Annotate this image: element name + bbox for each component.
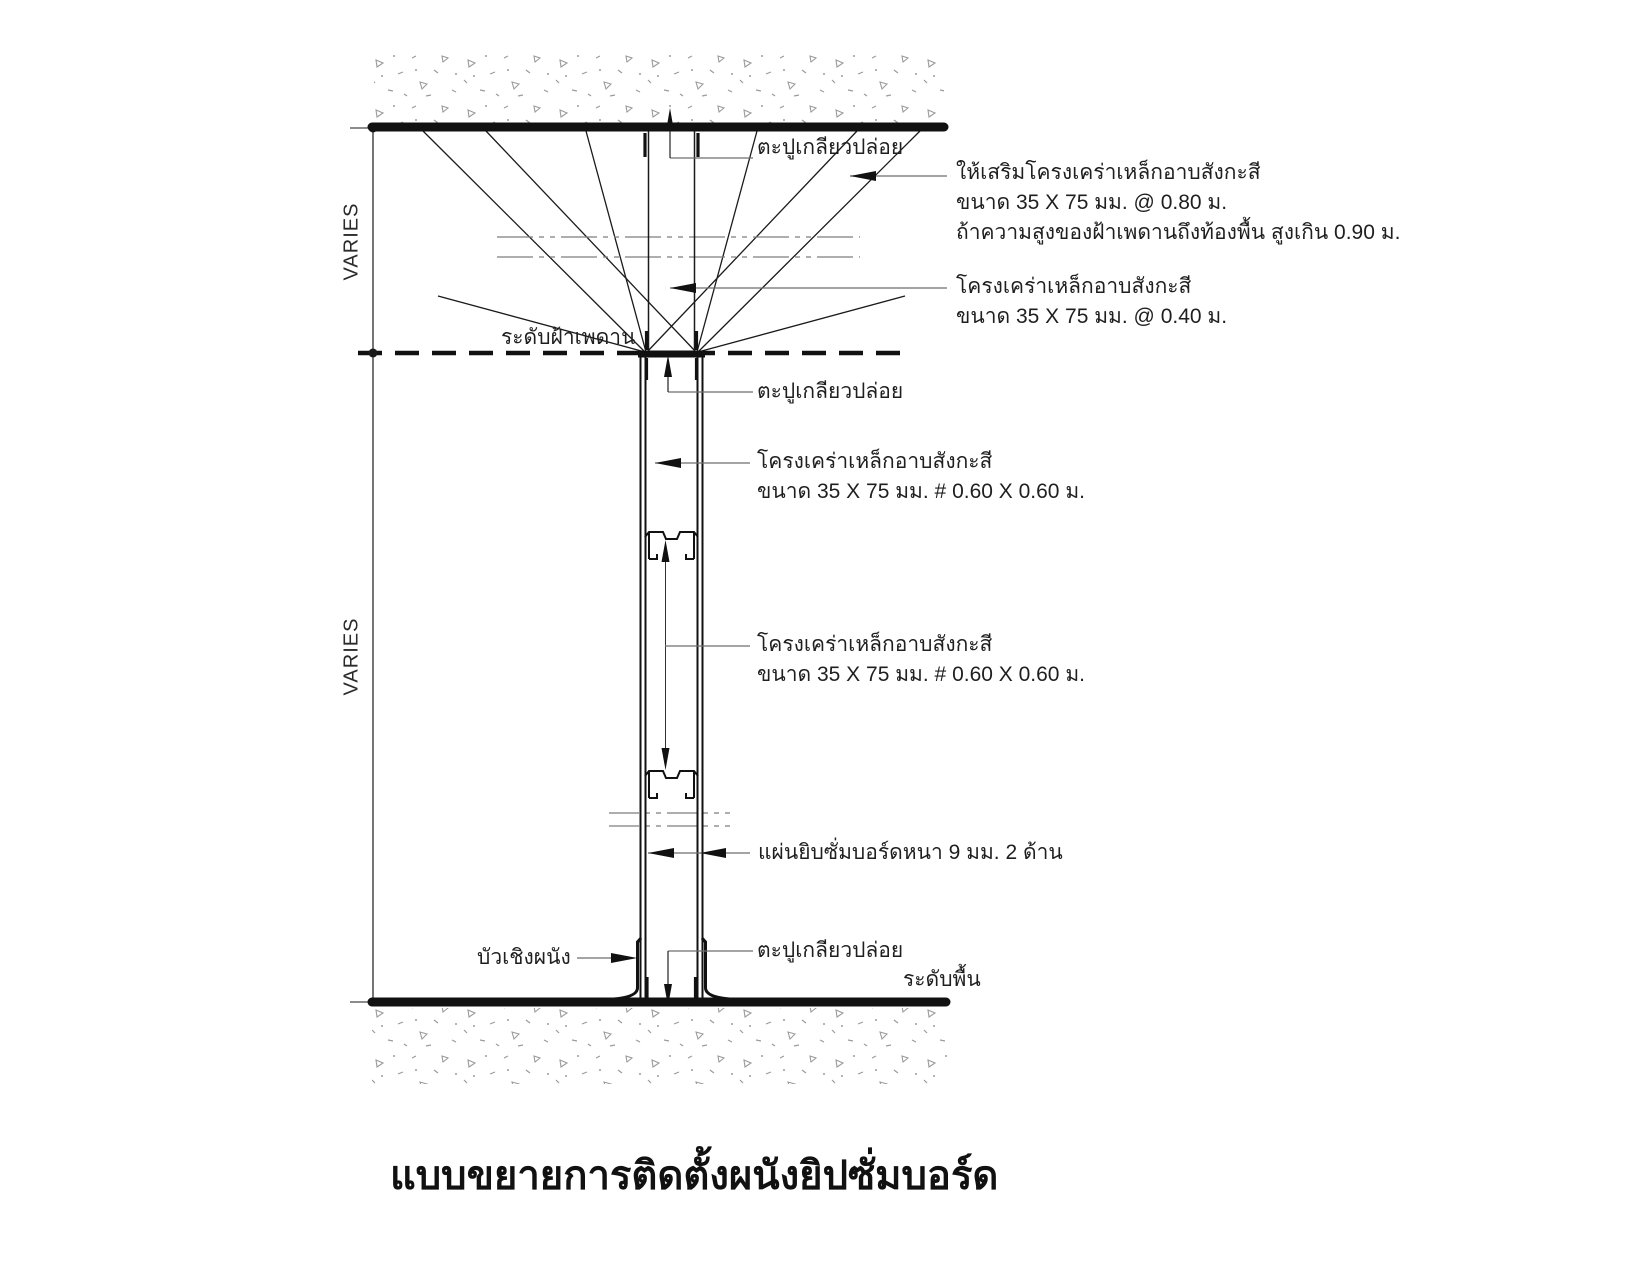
upper-studs xyxy=(649,131,695,353)
channel-section-lower xyxy=(645,771,698,798)
diagonal-braces xyxy=(423,131,920,352)
brace-annotation-line2: ขนาด 35 X 75 มม. @ 0.80 ม. xyxy=(956,188,1400,218)
screw-ticks xyxy=(645,133,698,999)
drawing-sheet: VARIES VARIES ระดับฝ้าเพดาน ระดับพื้น ตะ… xyxy=(0,0,1650,1275)
screw-top-annotation: ตะปูเกลียวปล่อย xyxy=(757,133,903,163)
skirting-annotation: บัวเชิงผนัง xyxy=(477,943,571,973)
varies-dimension-upper: VARIES xyxy=(341,172,364,312)
channel-section-upper xyxy=(645,532,698,559)
brace-annotation: ให้เสริมโครงเคร่าเหล็กอาบสังกะสี ขนาด 35… xyxy=(956,158,1400,248)
screw-bottom-annotation: ตะปูเกลียวปล่อย xyxy=(757,936,903,966)
screw-ceiling-annotation: ตะปูเกลียวปล่อย xyxy=(757,377,903,407)
varies-dimension-lower: VARIES xyxy=(341,587,364,727)
ceiling-level-label: ระดับฝ้าเพดาน xyxy=(501,321,635,354)
stud-lower-annotation: โครงเคร่าเหล็กอาบสังกะสี ขนาด 35 X 75 มม… xyxy=(757,630,1085,690)
runner-annotation-line2: ขนาด 35 X 75 มม. @ 0.40 ม. xyxy=(956,302,1227,332)
channel-spacing-arrow xyxy=(662,540,670,770)
slab-concrete-hatch xyxy=(374,52,944,123)
stud-upper-annotation-line1: โครงเคร่าเหล็กอาบสังกะสี xyxy=(757,447,1085,477)
arrowheads xyxy=(611,108,876,1006)
stud-lower-annotation-line2: ขนาด 35 X 75 มม. # 0.60 X 0.60 ม. xyxy=(757,660,1085,690)
gypsum-board-annotation: แผ่นยิบซั่มบอร์ดหนา 9 มม. 2 ด้าน xyxy=(758,838,1063,868)
floor-concrete-hatch xyxy=(372,1008,948,1084)
gypsum-boards xyxy=(641,353,703,1000)
stud-upper-annotation: โครงเคร่าเหล็กอาบสังกะสี ขนาด 35 X 75 มม… xyxy=(757,447,1085,507)
skirting-profiles xyxy=(602,938,741,1000)
sheet-title: แบบขยายการติดตั้งผนังยิปซั่มบอร์ด xyxy=(390,1143,998,1207)
runner-annotation-line1: โครงเคร่าเหล็กอาบสังกะสี xyxy=(956,272,1227,302)
runner-annotation: โครงเคร่าเหล็กอาบสังกะสี ขนาด 35 X 75 มม… xyxy=(956,272,1227,332)
brace-annotation-line1: ให้เสริมโครงเคร่าเหล็กอาบสังกะสี xyxy=(956,158,1400,188)
stud-lower-annotation-line1: โครงเคร่าเหล็กอาบสังกะสี xyxy=(757,630,1085,660)
brace-annotation-line3: ถ้าความสูงของฝ้าเพดานถึงท้องพื้น สูงเกิน… xyxy=(956,218,1400,248)
floor-level-label: ระดับพื้น xyxy=(903,963,981,996)
stud-upper-annotation-line2: ขนาด 35 X 75 มม. # 0.60 X 0.60 ม. xyxy=(757,477,1085,507)
